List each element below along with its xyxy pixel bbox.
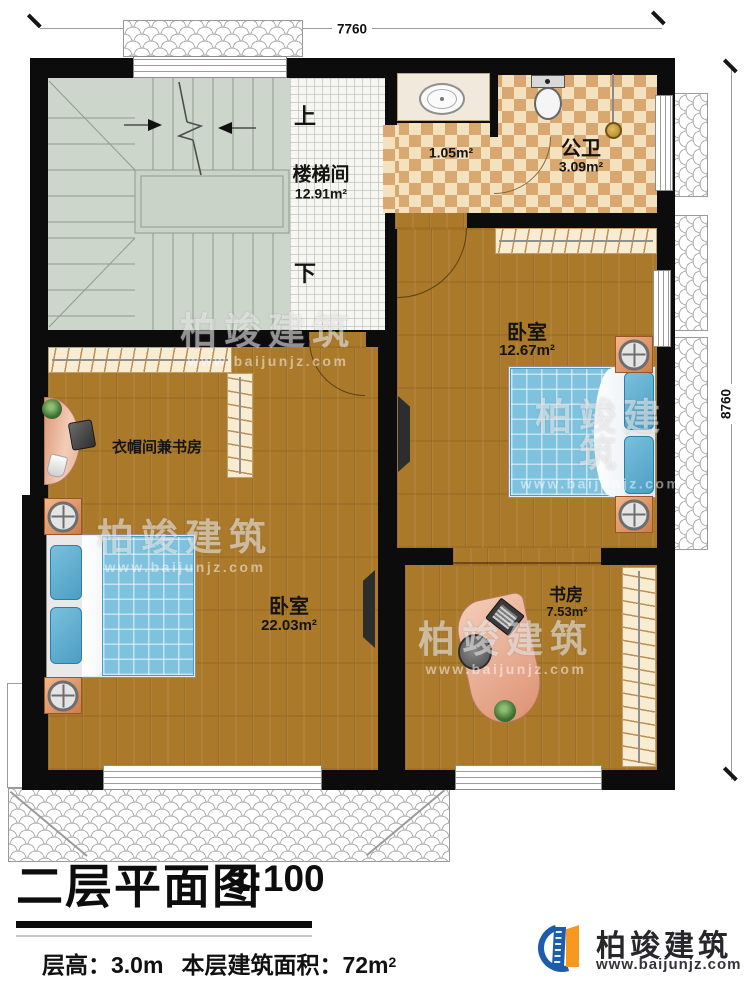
bedroom-left-pillow-2 [50, 607, 82, 664]
page-title: 二层平面图 [16, 848, 261, 917]
top-dimension-label: 7760 [332, 22, 372, 37]
wardrobe-rail [239, 377, 241, 474]
wall-left-lower-extension [22, 495, 32, 790]
stair-up-label: 上 [294, 105, 316, 129]
window-bottom-left [103, 765, 322, 790]
brand-logo-icon [538, 918, 592, 976]
bedroom-right-doorway [395, 213, 467, 229]
stairwell-stairs [48, 78, 290, 330]
drawing-scale: 1:100 [230, 858, 325, 900]
cloakroom-plant [42, 399, 62, 419]
sink-counter [397, 73, 490, 121]
bedroom-left-nightstand-bottom [44, 677, 82, 714]
roof-hip-line-left [10, 791, 88, 856]
logo-tower-windows [554, 930, 562, 963]
bedroom-right-tv [398, 396, 410, 472]
stairwell-name: 楼梯间 [292, 166, 349, 187]
floor-info: 层高：3.0m本层建筑面积：72m2 [42, 946, 396, 980]
wardrobe-rail [638, 571, 640, 763]
bedroom-right-area: 12.67m² [499, 343, 555, 360]
window-bottom-right [455, 765, 602, 790]
logo-tower-orange [566, 925, 579, 967]
bedroom-left-name: 卧室 [269, 596, 309, 618]
study-threshold-line [453, 562, 601, 564]
floor-area-text: 本层建筑面积：72m [181, 952, 388, 978]
watermark-text: 柏竣建筑 [180, 313, 356, 350]
stairs-drawing [48, 78, 290, 330]
watermark-2: 柏竣建筑 www.baijunjz.com [97, 519, 273, 575]
window-right-bedroom [653, 270, 671, 347]
sink-drain [440, 97, 444, 101]
toilet-flush-button [545, 79, 550, 84]
watermark-text: 柏竣建筑 [521, 399, 682, 473]
cloakroom-monitor [68, 419, 96, 451]
shower-rail [612, 74, 614, 124]
stair-down-label: 下 [294, 262, 316, 286]
toilet-room-area: 3.09m² [559, 159, 603, 174]
toilet [531, 75, 565, 121]
watermark-url: www.baijunjz.com [97, 559, 273, 575]
study-plant [494, 700, 516, 722]
bedroom-right-nightstand-top [615, 336, 653, 373]
watermark-4: 柏竣建筑 www.baijunjz.com [418, 621, 594, 677]
study-name: 书房 [549, 587, 583, 606]
window-right-upper [655, 95, 673, 191]
floor-area-sup: 2 [388, 954, 396, 970]
study-area: 7.53m² [546, 605, 587, 619]
bedroom-left-pillow-1 [50, 545, 82, 600]
roof-patch-right-1 [672, 93, 708, 197]
stairwell-area: 12.91m² [295, 186, 347, 201]
bedroom-left-nightstand-top [44, 498, 82, 535]
bedroom-right-nightstand-bottom [615, 496, 653, 533]
bedroom-right-wardrobe [495, 228, 657, 254]
watermark-text: 柏竣建筑 [418, 621, 594, 658]
study-wardrobe [622, 567, 656, 767]
vestibule-area: 1.05m² [429, 145, 473, 160]
watermark-url: www.baijunjz.com [418, 661, 594, 677]
top-dimension-tick-left [27, 14, 41, 28]
logo-tower-blue [552, 927, 566, 967]
roof-patch-right-2 [672, 215, 708, 331]
bedroom-left-tv [363, 570, 375, 648]
vestibule-floor [397, 123, 490, 213]
watermark-1: 柏竣建筑 www.baijunjz.com [180, 313, 356, 369]
top-dimension-tick-right [651, 11, 665, 25]
vestibule-doorway [383, 125, 399, 213]
floor-height-text: 层高：3.0m [42, 952, 163, 978]
cloakroom-wardrobe-side [227, 373, 253, 478]
watermark-3: 柏竣建筑 www.baijunjz.com [521, 399, 682, 492]
brand-website: www.baijunjz.com [596, 956, 741, 973]
bedroom-left-area: 22.03m² [261, 618, 317, 635]
toilet-bowl [534, 87, 562, 120]
watermark-text: 柏竣建筑 [97, 519, 273, 556]
toilet-room-name: 公卫 [561, 138, 601, 160]
wall-vestibule-toilet [490, 73, 498, 137]
right-dimension-label: 8760 [719, 384, 734, 424]
floorplan-canvas: 7760 8760 [0, 0, 750, 993]
title-rule-thick [16, 921, 312, 928]
watermark-url: www.baijunjz.com [521, 476, 682, 492]
wardrobe-rail [499, 240, 653, 242]
bedroom-right-name: 卧室 [507, 322, 547, 344]
window-top [133, 56, 287, 78]
roof-hip-line-right [367, 790, 445, 856]
roof-patch-top [123, 20, 303, 57]
shower-head [605, 122, 622, 139]
watermark-url: www.baijunjz.com [180, 353, 356, 369]
title-rule-thin [16, 935, 312, 937]
cloakroom-name: 衣帽间兼书房 [112, 440, 202, 457]
